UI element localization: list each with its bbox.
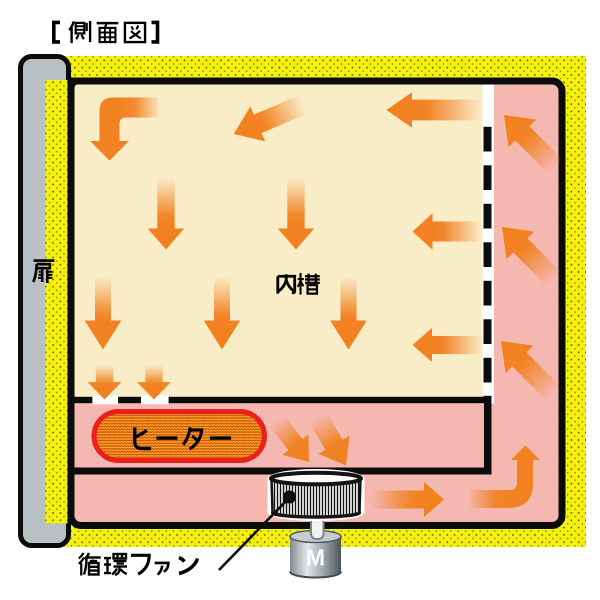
svg-text:M: M	[306, 545, 325, 571]
